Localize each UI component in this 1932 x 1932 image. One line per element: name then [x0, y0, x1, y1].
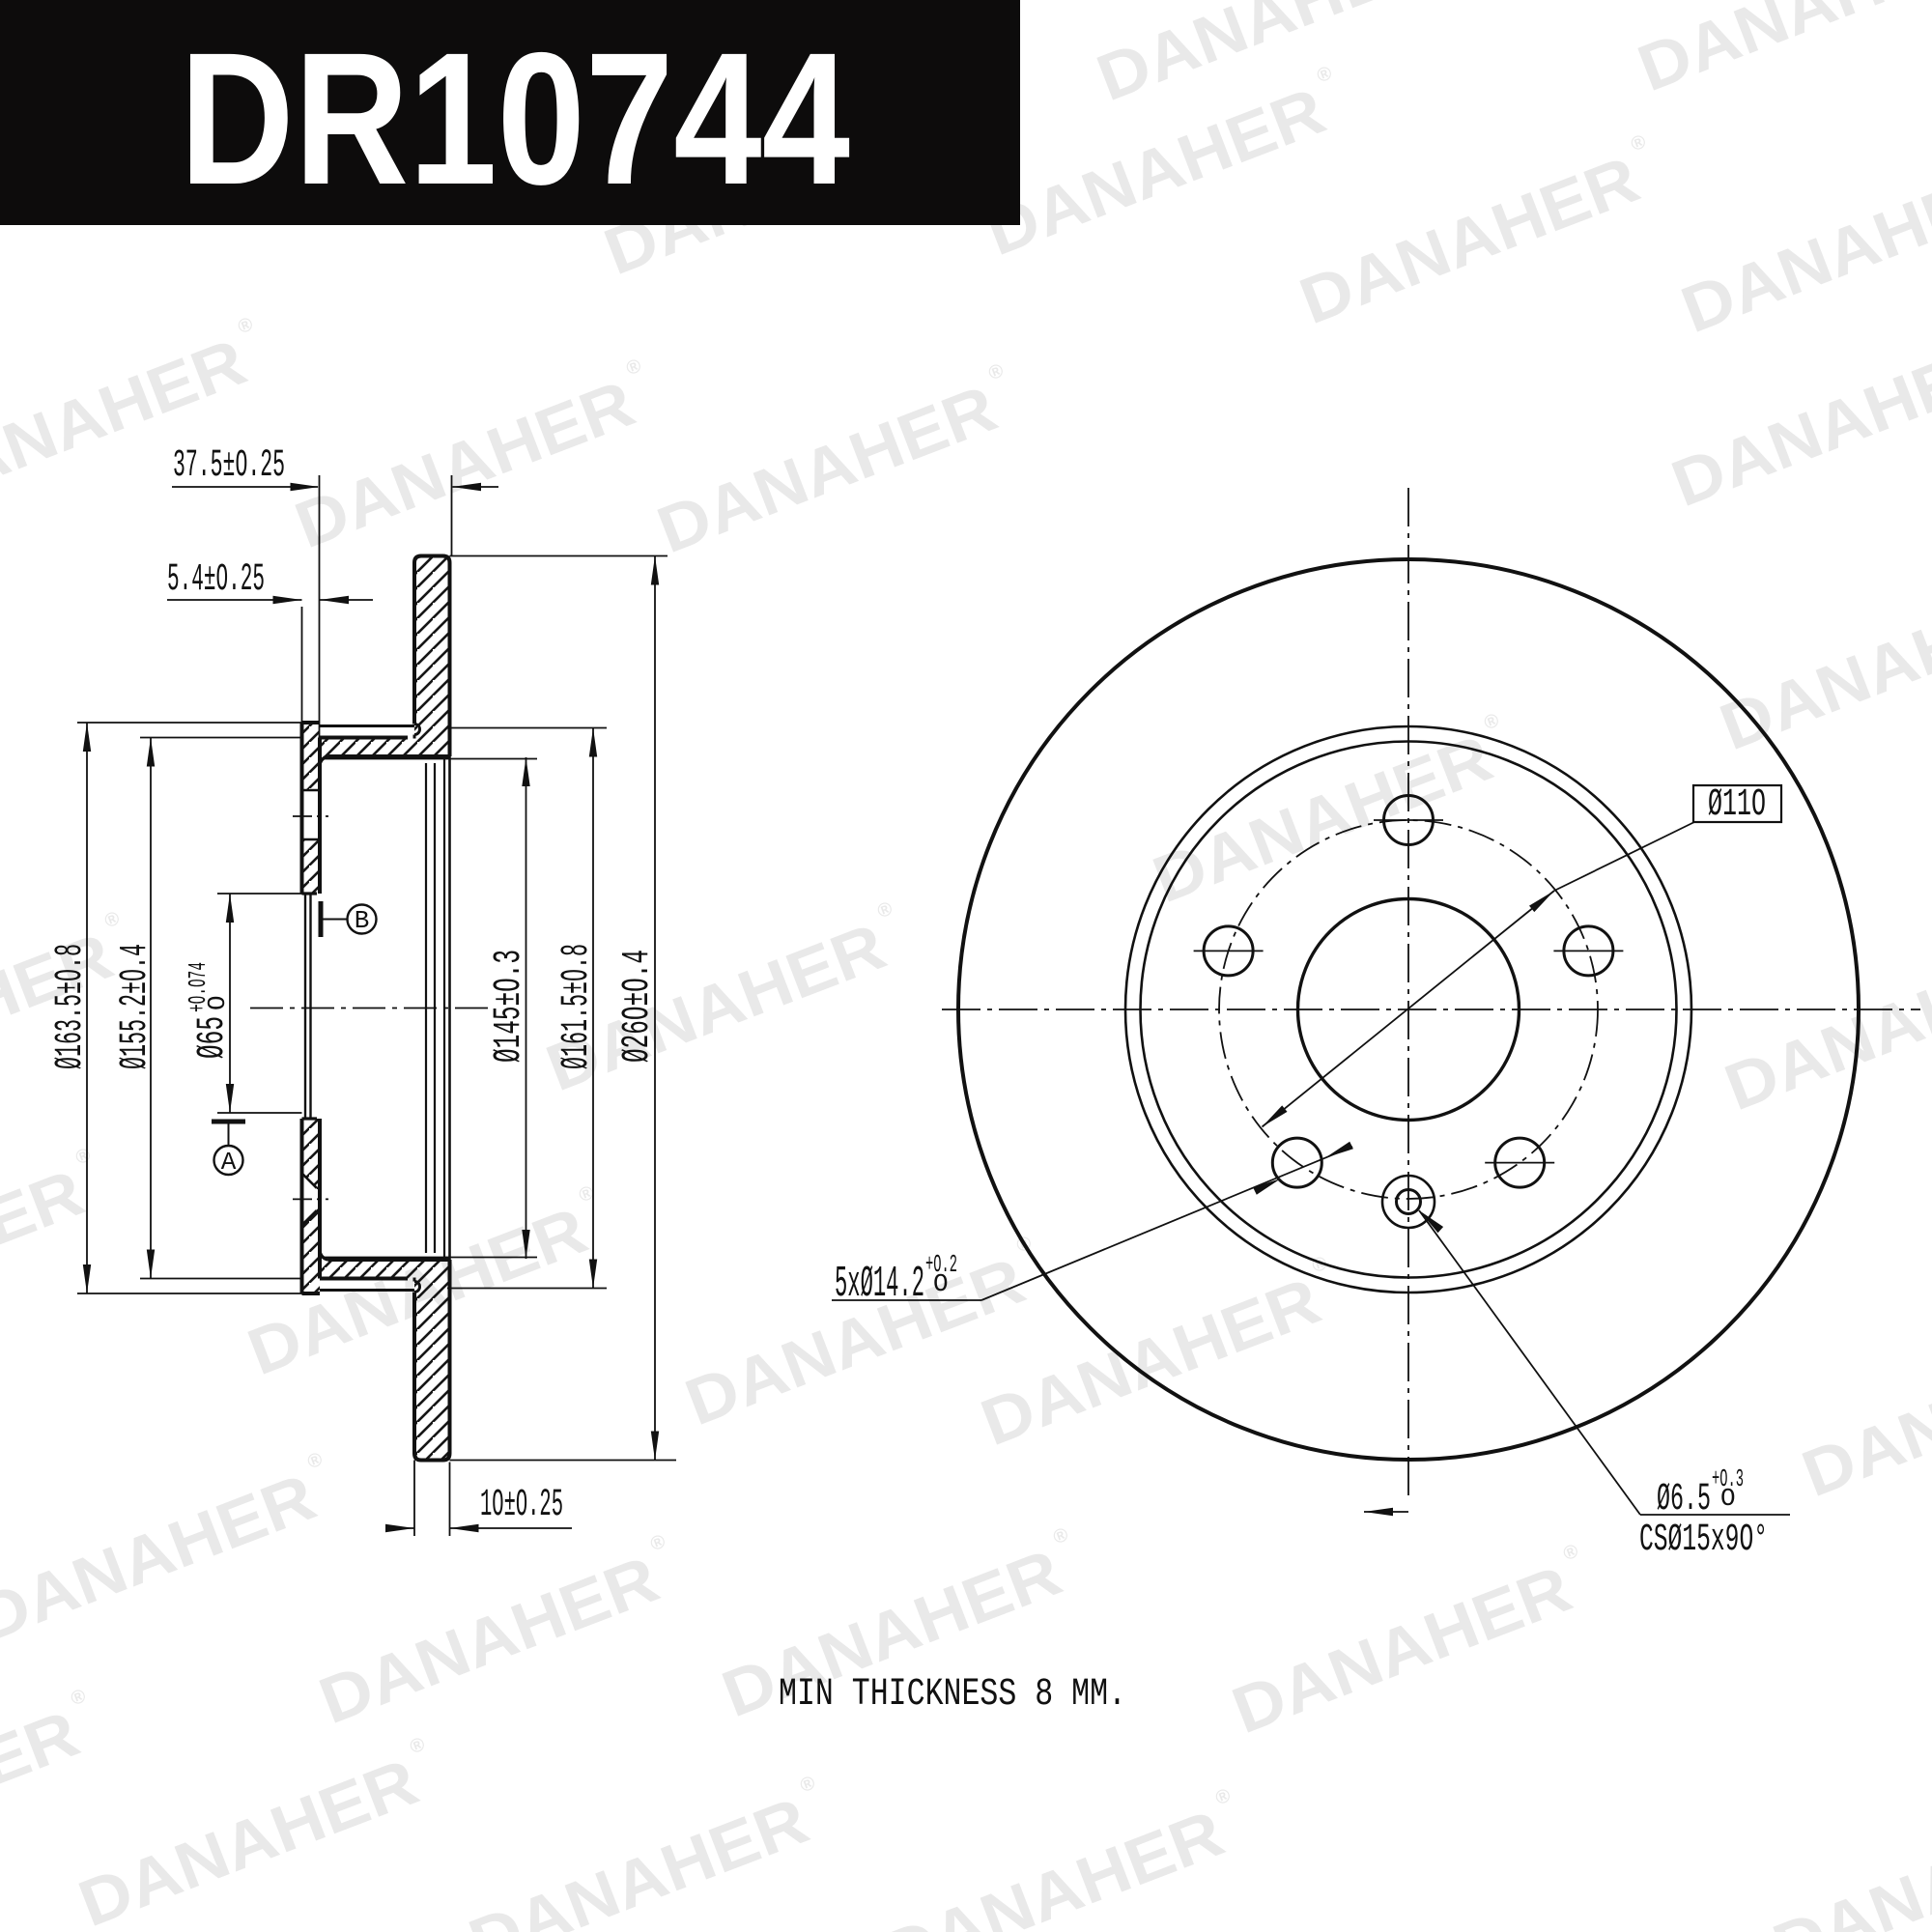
svg-text:Ø26O±O.4: Ø26O±O.4 — [616, 950, 660, 1063]
svg-text:MIN THICKNESS 8 MM.: MIN THICKNESS 8 MM. — [779, 1673, 1126, 1717]
svg-text:A: A — [221, 1148, 237, 1177]
svg-text:Ø155.2±O.4: Ø155.2±O.4 — [114, 944, 157, 1069]
svg-text:O: O — [933, 1269, 949, 1298]
svg-text:Ø163.5±O.8: Ø163.5±O.8 — [49, 944, 93, 1069]
svg-text:B: B — [355, 906, 370, 935]
svg-text:Ø161.5±O.8: Ø161.5±O.8 — [555, 944, 599, 1069]
svg-text:O: O — [1720, 1484, 1736, 1513]
svg-text:Ø145±O.3: Ø145±O.3 — [488, 950, 531, 1063]
svg-text:O: O — [203, 995, 232, 1010]
svg-text:5.4±O.25: 5.4±O.25 — [167, 558, 265, 602]
svg-text:CSØ15x9O°: CSØ15x9O° — [1639, 1519, 1768, 1562]
svg-text:Ø11O: Ø11O — [1708, 783, 1766, 827]
svg-text:5xØ14.2: 5xØ14.2 — [835, 1260, 924, 1309]
svg-text:Ø6.5: Ø6.5 — [1657, 1478, 1711, 1521]
svg-text:Ø65: Ø65 — [191, 1016, 235, 1059]
svg-text:1O±O.25: 1O±O.25 — [480, 1484, 563, 1527]
svg-text:DR10744: DR10744 — [180, 14, 850, 224]
svg-text:37.5±O.25: 37.5±O.25 — [173, 444, 285, 488]
